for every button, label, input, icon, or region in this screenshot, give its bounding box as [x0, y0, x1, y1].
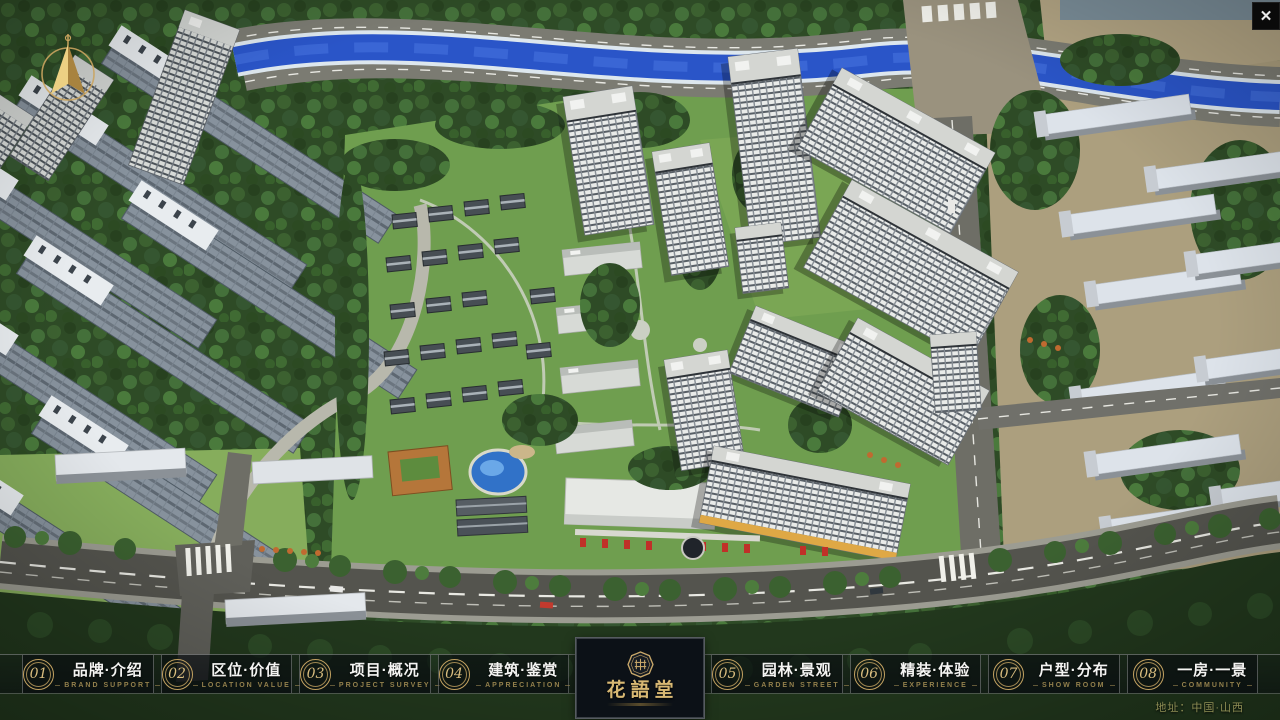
nav-badge-08: 08 [1133, 659, 1164, 690]
nav-item-brand[interactable]: 01 品牌·介绍 BRAND SUPPORT [22, 655, 154, 693]
project-logo-panel[interactable]: 花語堂 [576, 638, 704, 718]
nav-label-en: EXPERIENCE [894, 682, 977, 689]
project-logo-title: 花語堂 [601, 681, 678, 700]
nav-label-zh: 一房·一景 [1177, 659, 1247, 680]
seal-emblem-icon [627, 651, 654, 678]
nav-label-en: GARDEN STREET [745, 682, 849, 689]
nav-badge-06: 06 [854, 659, 885, 690]
nav-badge-07: 07 [993, 659, 1024, 690]
nav-label-en: LOCATION VALUE [193, 682, 300, 689]
nav-item-project[interactable]: 03 项目·概况 PROJECT SURVEY [299, 655, 431, 693]
aerial-site-map-render [0, 0, 1280, 720]
nav-badge-01: 01 [23, 659, 54, 690]
close-icon: ✕ [1260, 7, 1273, 25]
bottom-navbar: 01 品牌·介绍 BRAND SUPPORT 02 区位·价值 LOCATION… [0, 654, 1280, 694]
nav-badge-04: 04 [439, 659, 470, 690]
nav-label-en: PROJECT SURVEY [330, 682, 440, 689]
nav-item-floorplan[interactable]: 07 户型·分布 SHOW ROOM [988, 655, 1120, 693]
nav-label-en: APPRECIATION [476, 682, 570, 689]
project-address: 地址：中国·山西 [1155, 699, 1244, 715]
nav-label-en: BRAND SUPPORT [55, 682, 160, 689]
nav-label-zh: 品牌·介绍 [73, 659, 143, 680]
nav-label-zh: 户型·分布 [1039, 659, 1109, 680]
nav-label-zh: 项目·概况 [350, 659, 420, 680]
nav-item-interior[interactable]: 06 精装·体验 EXPERIENCE [850, 655, 982, 693]
nav-badge-05: 05 [712, 659, 743, 690]
nav-item-garden[interactable]: 05 园林·景观 GARDEN STREET [711, 655, 843, 693]
presentation-stage: ✕ 01 品牌·介绍 BRAND SUPPORT 02 区位·价值 LOCATI… [0, 0, 1280, 720]
close-button[interactable]: ✕ [1252, 2, 1280, 30]
nav-item-views[interactable]: 08 一房·一景 COMMUNITY [1127, 655, 1259, 693]
nav-item-location[interactable]: 02 区位·价值 LOCATION VALUE [161, 655, 293, 693]
nav-label-en: SHOW ROOM [1033, 682, 1115, 689]
nav-badge-02: 02 [162, 659, 193, 690]
nav-label-zh: 建筑·鉴赏 [488, 659, 558, 680]
nav-label-en: COMMUNITY [1173, 682, 1252, 689]
nav-badge-03: 03 [300, 659, 331, 690]
logo-subtitle-rule [607, 703, 673, 706]
nav-label-zh: 精装·体验 [900, 659, 970, 680]
nav-label-zh: 区位·价值 [211, 659, 281, 680]
nav-item-architecture[interactable]: 04 建筑·鉴赏 APPRECIATION [438, 655, 570, 693]
nav-label-zh: 园林·景观 [762, 659, 832, 680]
